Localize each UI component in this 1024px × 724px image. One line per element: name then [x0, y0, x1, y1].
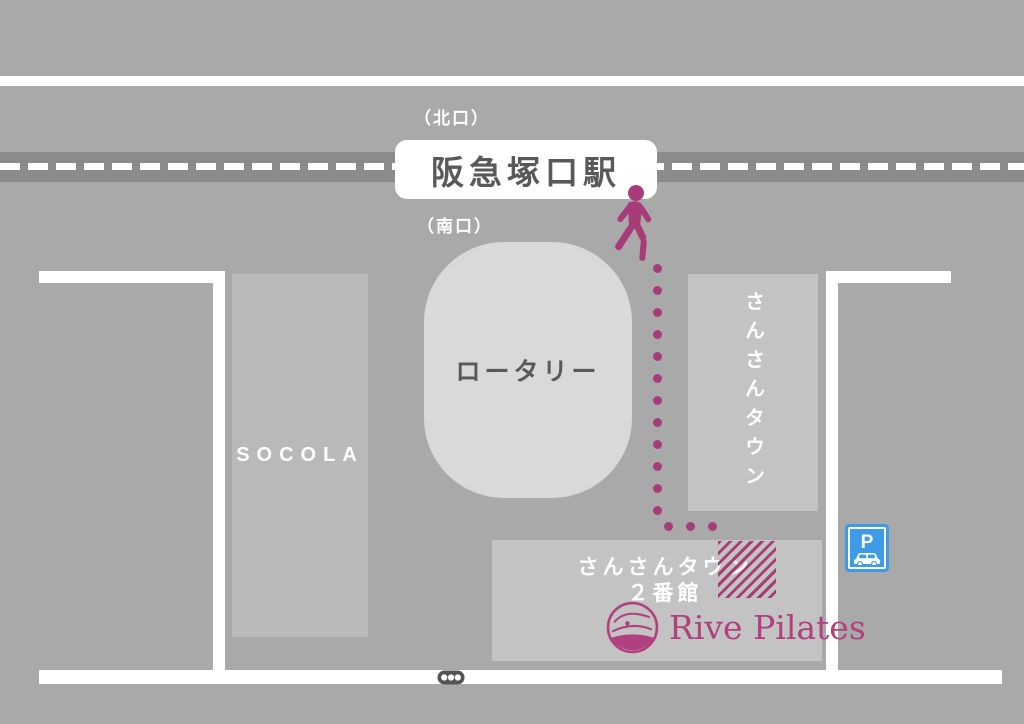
rive-pilates-logo-mark	[606, 601, 659, 654]
route-dot	[653, 440, 662, 449]
destination-hatch	[718, 541, 776, 598]
route-dot	[653, 264, 662, 273]
route-dot	[653, 352, 662, 361]
route-dot	[653, 330, 662, 339]
left-road-horizontal	[39, 271, 225, 283]
traffic-signal-icon	[437, 670, 465, 685]
walking-person-icon	[605, 184, 661, 262]
station-name: 阪急塚口駅	[431, 146, 621, 194]
route-dot	[653, 374, 662, 383]
route-dot	[653, 506, 662, 515]
parking-sign-frame: P	[848, 527, 886, 569]
car-icon	[853, 552, 881, 565]
rive-pilates-logo: Rive Pilates	[606, 601, 866, 654]
route-dot	[653, 286, 662, 295]
route-dot	[686, 522, 695, 531]
building-sansan-town: さんさんタウン	[688, 274, 818, 511]
south-exit-label: （南口）	[395, 212, 515, 237]
route-dot	[653, 462, 662, 471]
access-map: SOCOLA ロータリー さんさんタウン さんさんタウン ２番館 （北口） 阪急…	[0, 0, 1024, 724]
right-road-horizontal	[826, 271, 951, 283]
bottom-road	[39, 670, 1002, 684]
route-dot	[653, 418, 662, 427]
left-road-vertical	[213, 271, 225, 684]
route-dot	[708, 522, 717, 531]
socola-label: SOCOLA	[236, 444, 364, 467]
top-road	[0, 76, 1024, 86]
route-dot	[653, 484, 662, 493]
parking-p-label: P	[861, 533, 874, 552]
parking-sign: P	[845, 524, 889, 572]
rotary: ロータリー	[424, 242, 632, 498]
route-dot	[653, 396, 662, 405]
route-dot	[664, 522, 673, 531]
route-dot	[653, 308, 662, 317]
sansan-town-label: さんさんタウン	[739, 291, 768, 494]
north-exit-label: （北口）	[392, 104, 512, 129]
rotary-label: ロータリー	[455, 352, 600, 388]
rive-pilates-logo-text: Rive Pilates	[669, 608, 866, 647]
building-socola: SOCOLA	[232, 274, 368, 637]
